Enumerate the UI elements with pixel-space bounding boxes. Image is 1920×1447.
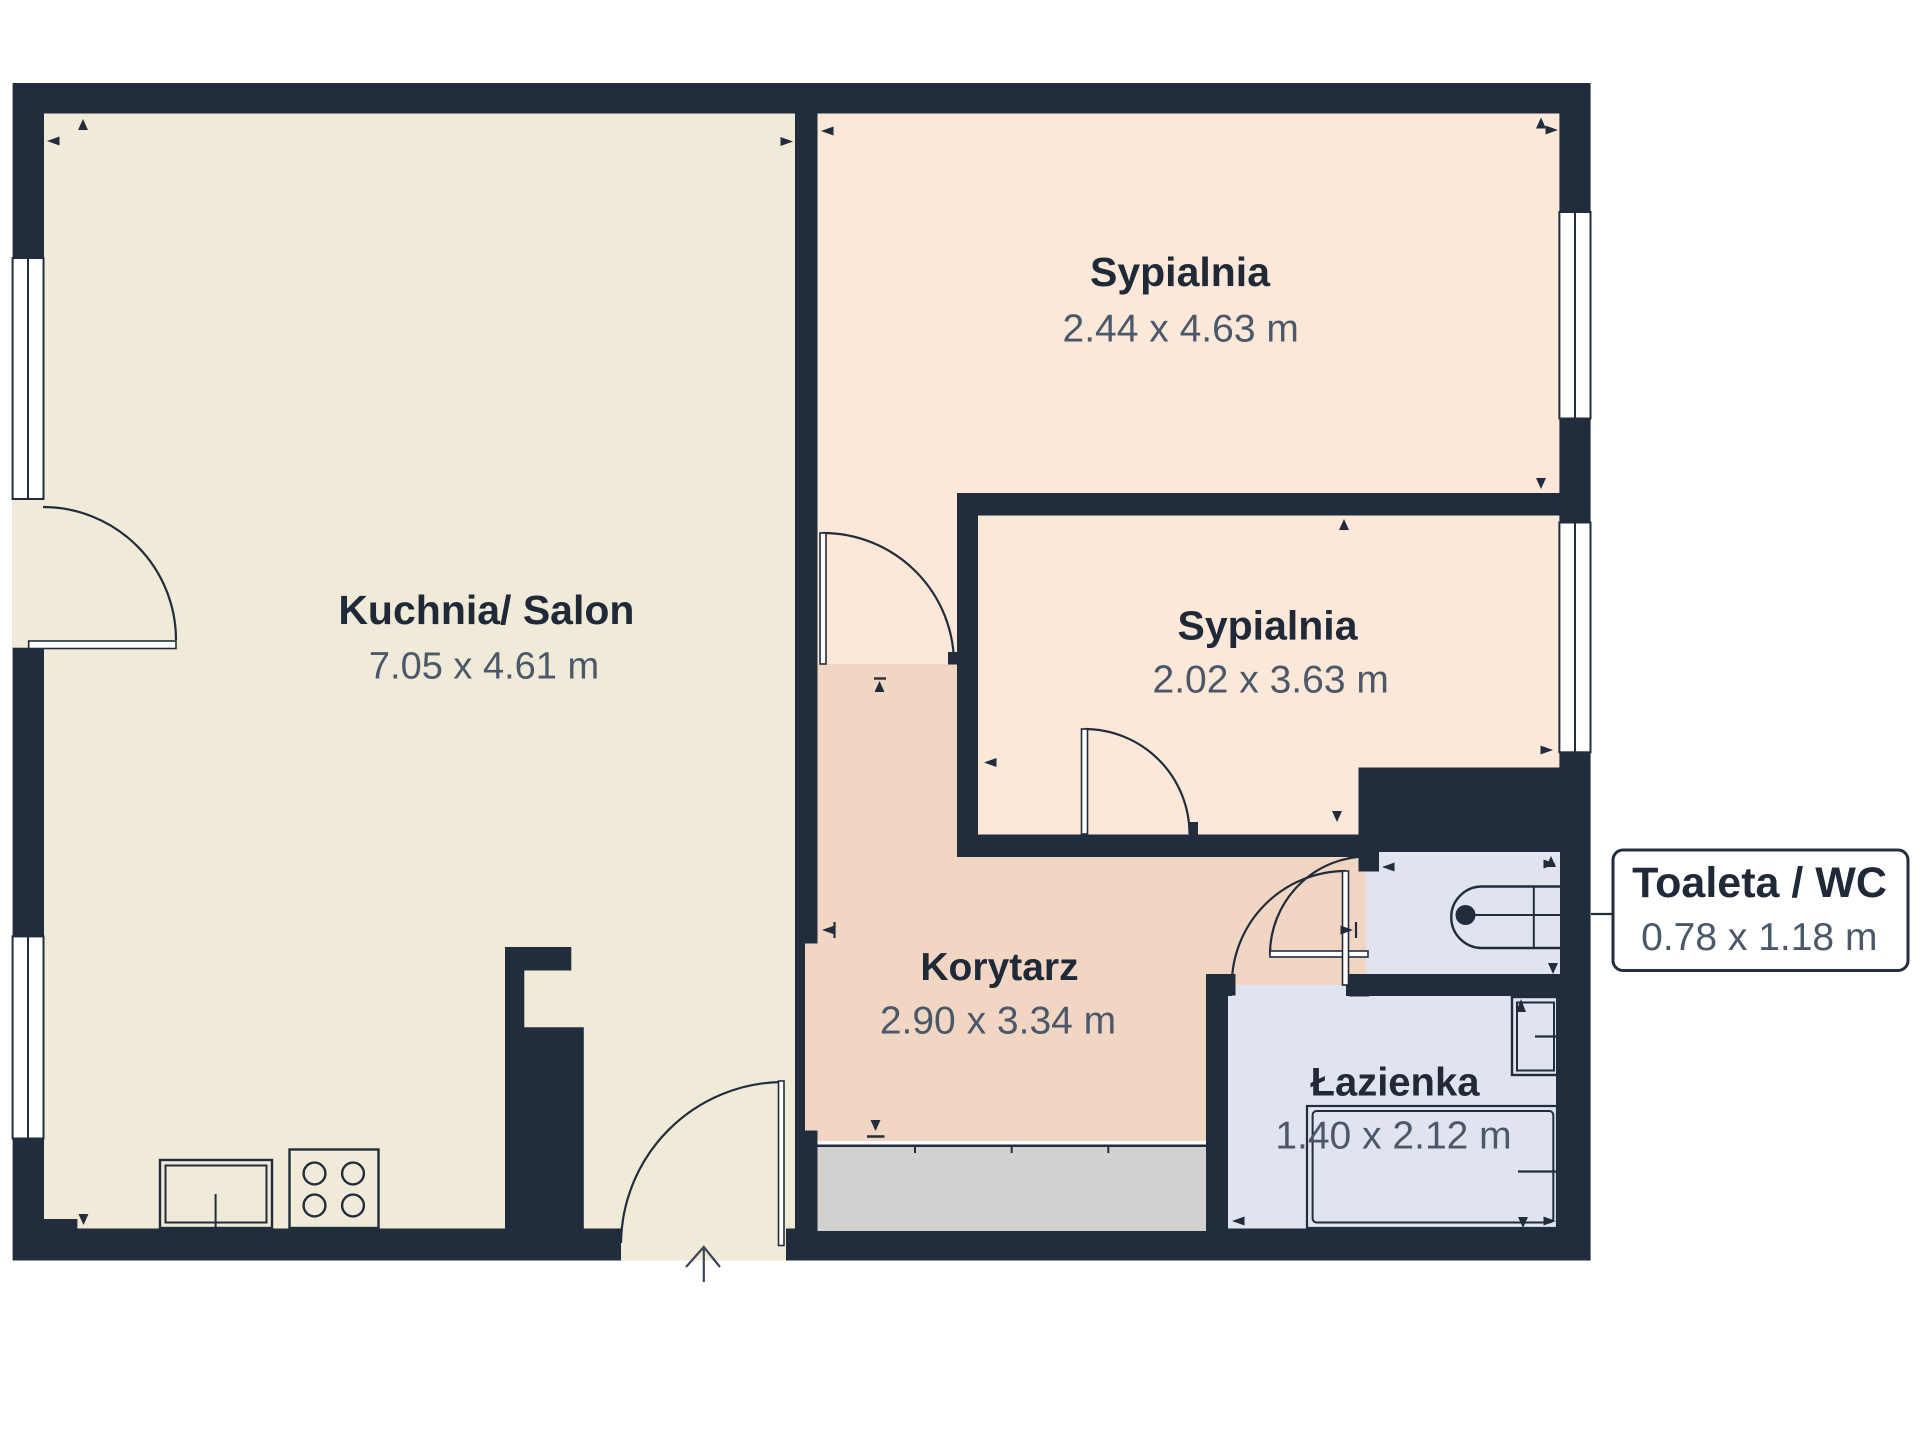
svg-text:Toaleta / WC: Toaleta / WC (1632, 859, 1887, 907)
svg-text:1.40 x 2.12 m: 1.40 x 2.12 m (1275, 1115, 1511, 1158)
svg-text:Korytarz: Korytarz (920, 946, 1078, 989)
svg-text:2.02 x 3.63 m: 2.02 x 3.63 m (1153, 659, 1389, 702)
svg-text:Sypialnia: Sypialnia (1177, 603, 1358, 649)
svg-text:Łazienka: Łazienka (1311, 1061, 1481, 1105)
svg-text:Sypialnia: Sypialnia (1090, 249, 1271, 295)
svg-text:Kuchnia/ Salon: Kuchnia/ Salon (338, 587, 634, 633)
svg-text:0.78 x 1.18 m: 0.78 x 1.18 m (1641, 916, 1877, 959)
svg-text:7.05 x 4.61 m: 7.05 x 4.61 m (369, 646, 599, 688)
svg-text:2.90 x 3.34 m: 2.90 x 3.34 m (880, 1000, 1116, 1043)
svg-text:2.44 x 4.63 m: 2.44 x 4.63 m (1063, 308, 1299, 351)
